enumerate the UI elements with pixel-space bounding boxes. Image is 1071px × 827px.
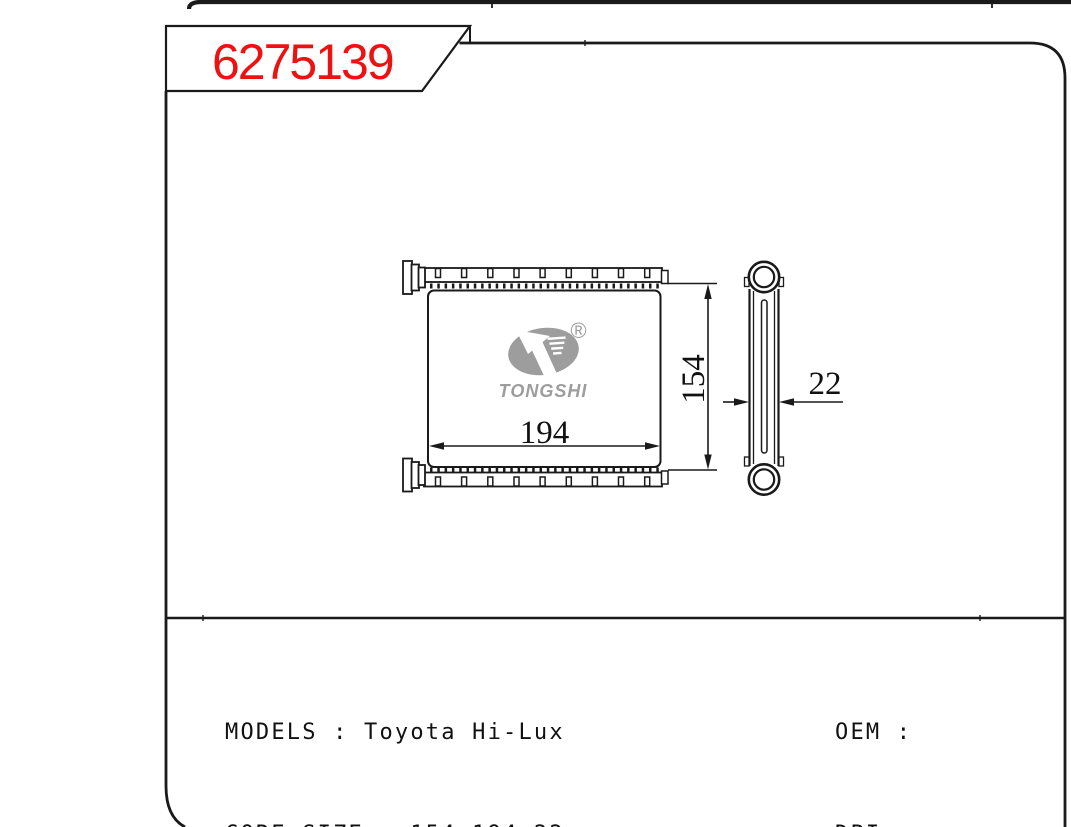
side-tab [745,457,750,466]
spec-right-column: OEM : DPI : NISSENS : [835,648,974,827]
arrow-left [779,398,794,405]
datasheet-page: ® TONGSHI 194 154 [0,0,1071,827]
side-slot [762,300,768,453]
tank-tab [436,269,441,278]
top-pipe-inner [754,267,774,287]
tank-tab [436,477,441,486]
arrow-left [429,442,444,449]
dim-194: 194 [429,415,660,451]
tank-tab [540,269,545,278]
bottom-tank-right-step [662,471,669,484]
dim-154: 154 [668,284,717,471]
tank-tab [566,477,571,486]
registered-mark: ® [570,318,586,343]
spec-row-oem: OEM : [835,716,974,750]
arrow-right [645,442,660,449]
side-tab [779,457,784,466]
dim-22: 22 [723,366,843,406]
tank-tab [592,269,597,278]
arrow-down [704,455,711,470]
arrow-up [704,284,711,299]
top-left-fitting [403,261,425,294]
bottom-left-fitting [403,459,425,492]
arrow-right [734,398,749,405]
tongshi-logo: ® TONGSHI [499,318,588,401]
tank-tab [592,477,597,486]
tank-tab [645,269,650,278]
tank-tab [540,477,545,486]
bottom-pipe-inner [754,469,774,489]
frame-left-border [166,91,185,827]
tank-tab [462,269,467,278]
front-view [403,261,668,492]
tank-tab [619,269,624,278]
spec-left-column: MODELS : Toyota Hi-Lux CORE SIZE : 154×1… [225,648,565,827]
tank-tab [645,477,650,486]
side-view [745,262,784,495]
spec-row-models: MODELS : Toyota Hi-Lux [225,716,565,750]
tank-tab [462,477,467,486]
tank-tab [488,269,493,278]
part-number: 6275139 [212,37,393,87]
dim-22-label: 22 [809,366,842,402]
tank-tab [488,477,493,486]
top-tank-right-step [662,271,669,284]
tank-tab [514,477,519,486]
spec-row-dpi: DPI : [835,818,974,827]
logo-text: TONGSHI [499,381,588,401]
tank-tab [514,269,519,278]
spec-row-core-size: CORE SIZE : 154×194×22 [225,818,565,827]
tank-tab [566,269,571,278]
dim-194-label: 194 [520,415,570,451]
tank-tab [619,477,624,486]
dim-154-label: 154 [676,354,712,404]
top-cutoff-line [189,2,1071,9]
